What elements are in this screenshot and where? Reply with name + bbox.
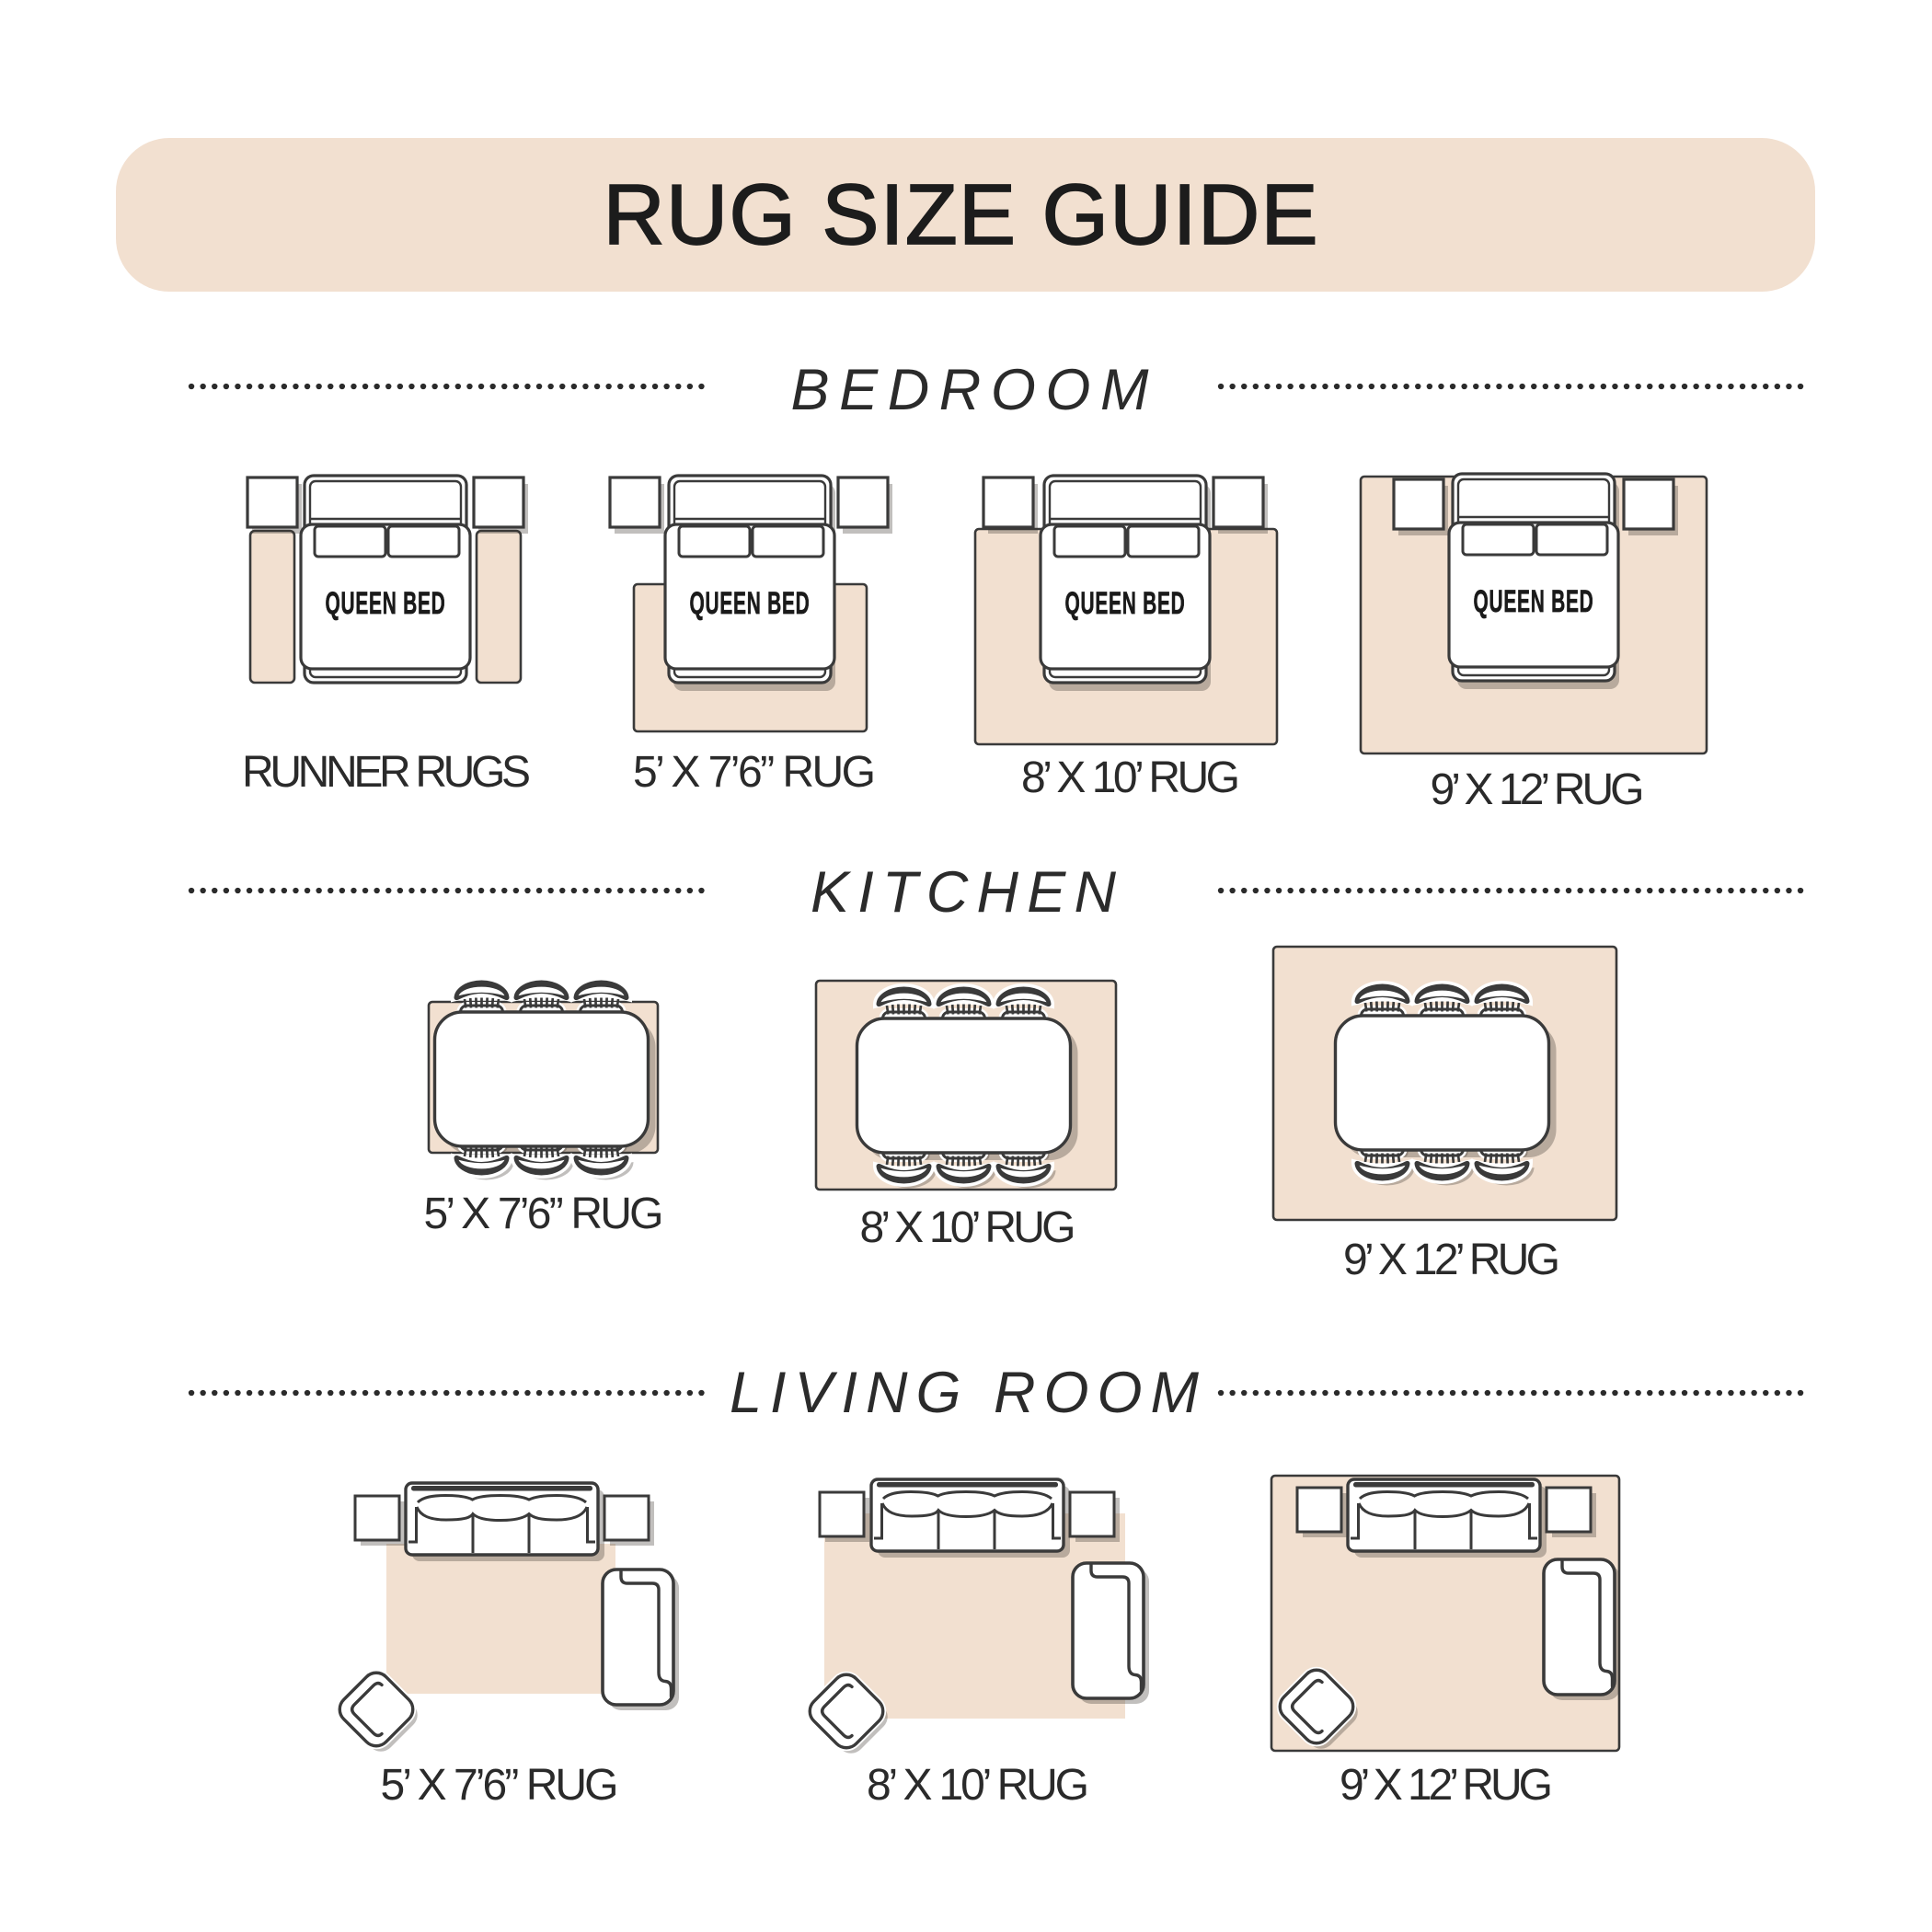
svg-text:8’ X 10’ RUG: 8’ X 10’ RUG xyxy=(1021,753,1240,802)
svg-text:RUG SIZE GUIDE: RUG SIZE GUIDE xyxy=(604,167,1318,262)
svg-text:5’ X 7’6” RUG: 5’ X 7’6” RUG xyxy=(633,748,876,797)
svg-text:9’ X 12’ RUG: 9’ X 12’ RUG xyxy=(1431,765,1645,814)
svg-text:RUNNER RUGS: RUNNER RUGS xyxy=(242,748,531,797)
svg-text:5’ X 7’6” RUG: 5’ X 7’6” RUG xyxy=(381,1761,619,1810)
svg-text:9’ X 12’ RUG: 9’ X 12’ RUG xyxy=(1340,1761,1553,1810)
svg-text:9’ X 12’ RUG: 9’ X 12’ RUG xyxy=(1343,1236,1560,1284)
svg-text:8’ X 10’ RUG: 8’ X 10’ RUG xyxy=(867,1761,1089,1810)
svg-text:8’ X 10’ RUG: 8’ X 10’ RUG xyxy=(860,1203,1076,1252)
svg-text:5’ X 7’6” RUG: 5’ X 7’6” RUG xyxy=(424,1190,664,1238)
